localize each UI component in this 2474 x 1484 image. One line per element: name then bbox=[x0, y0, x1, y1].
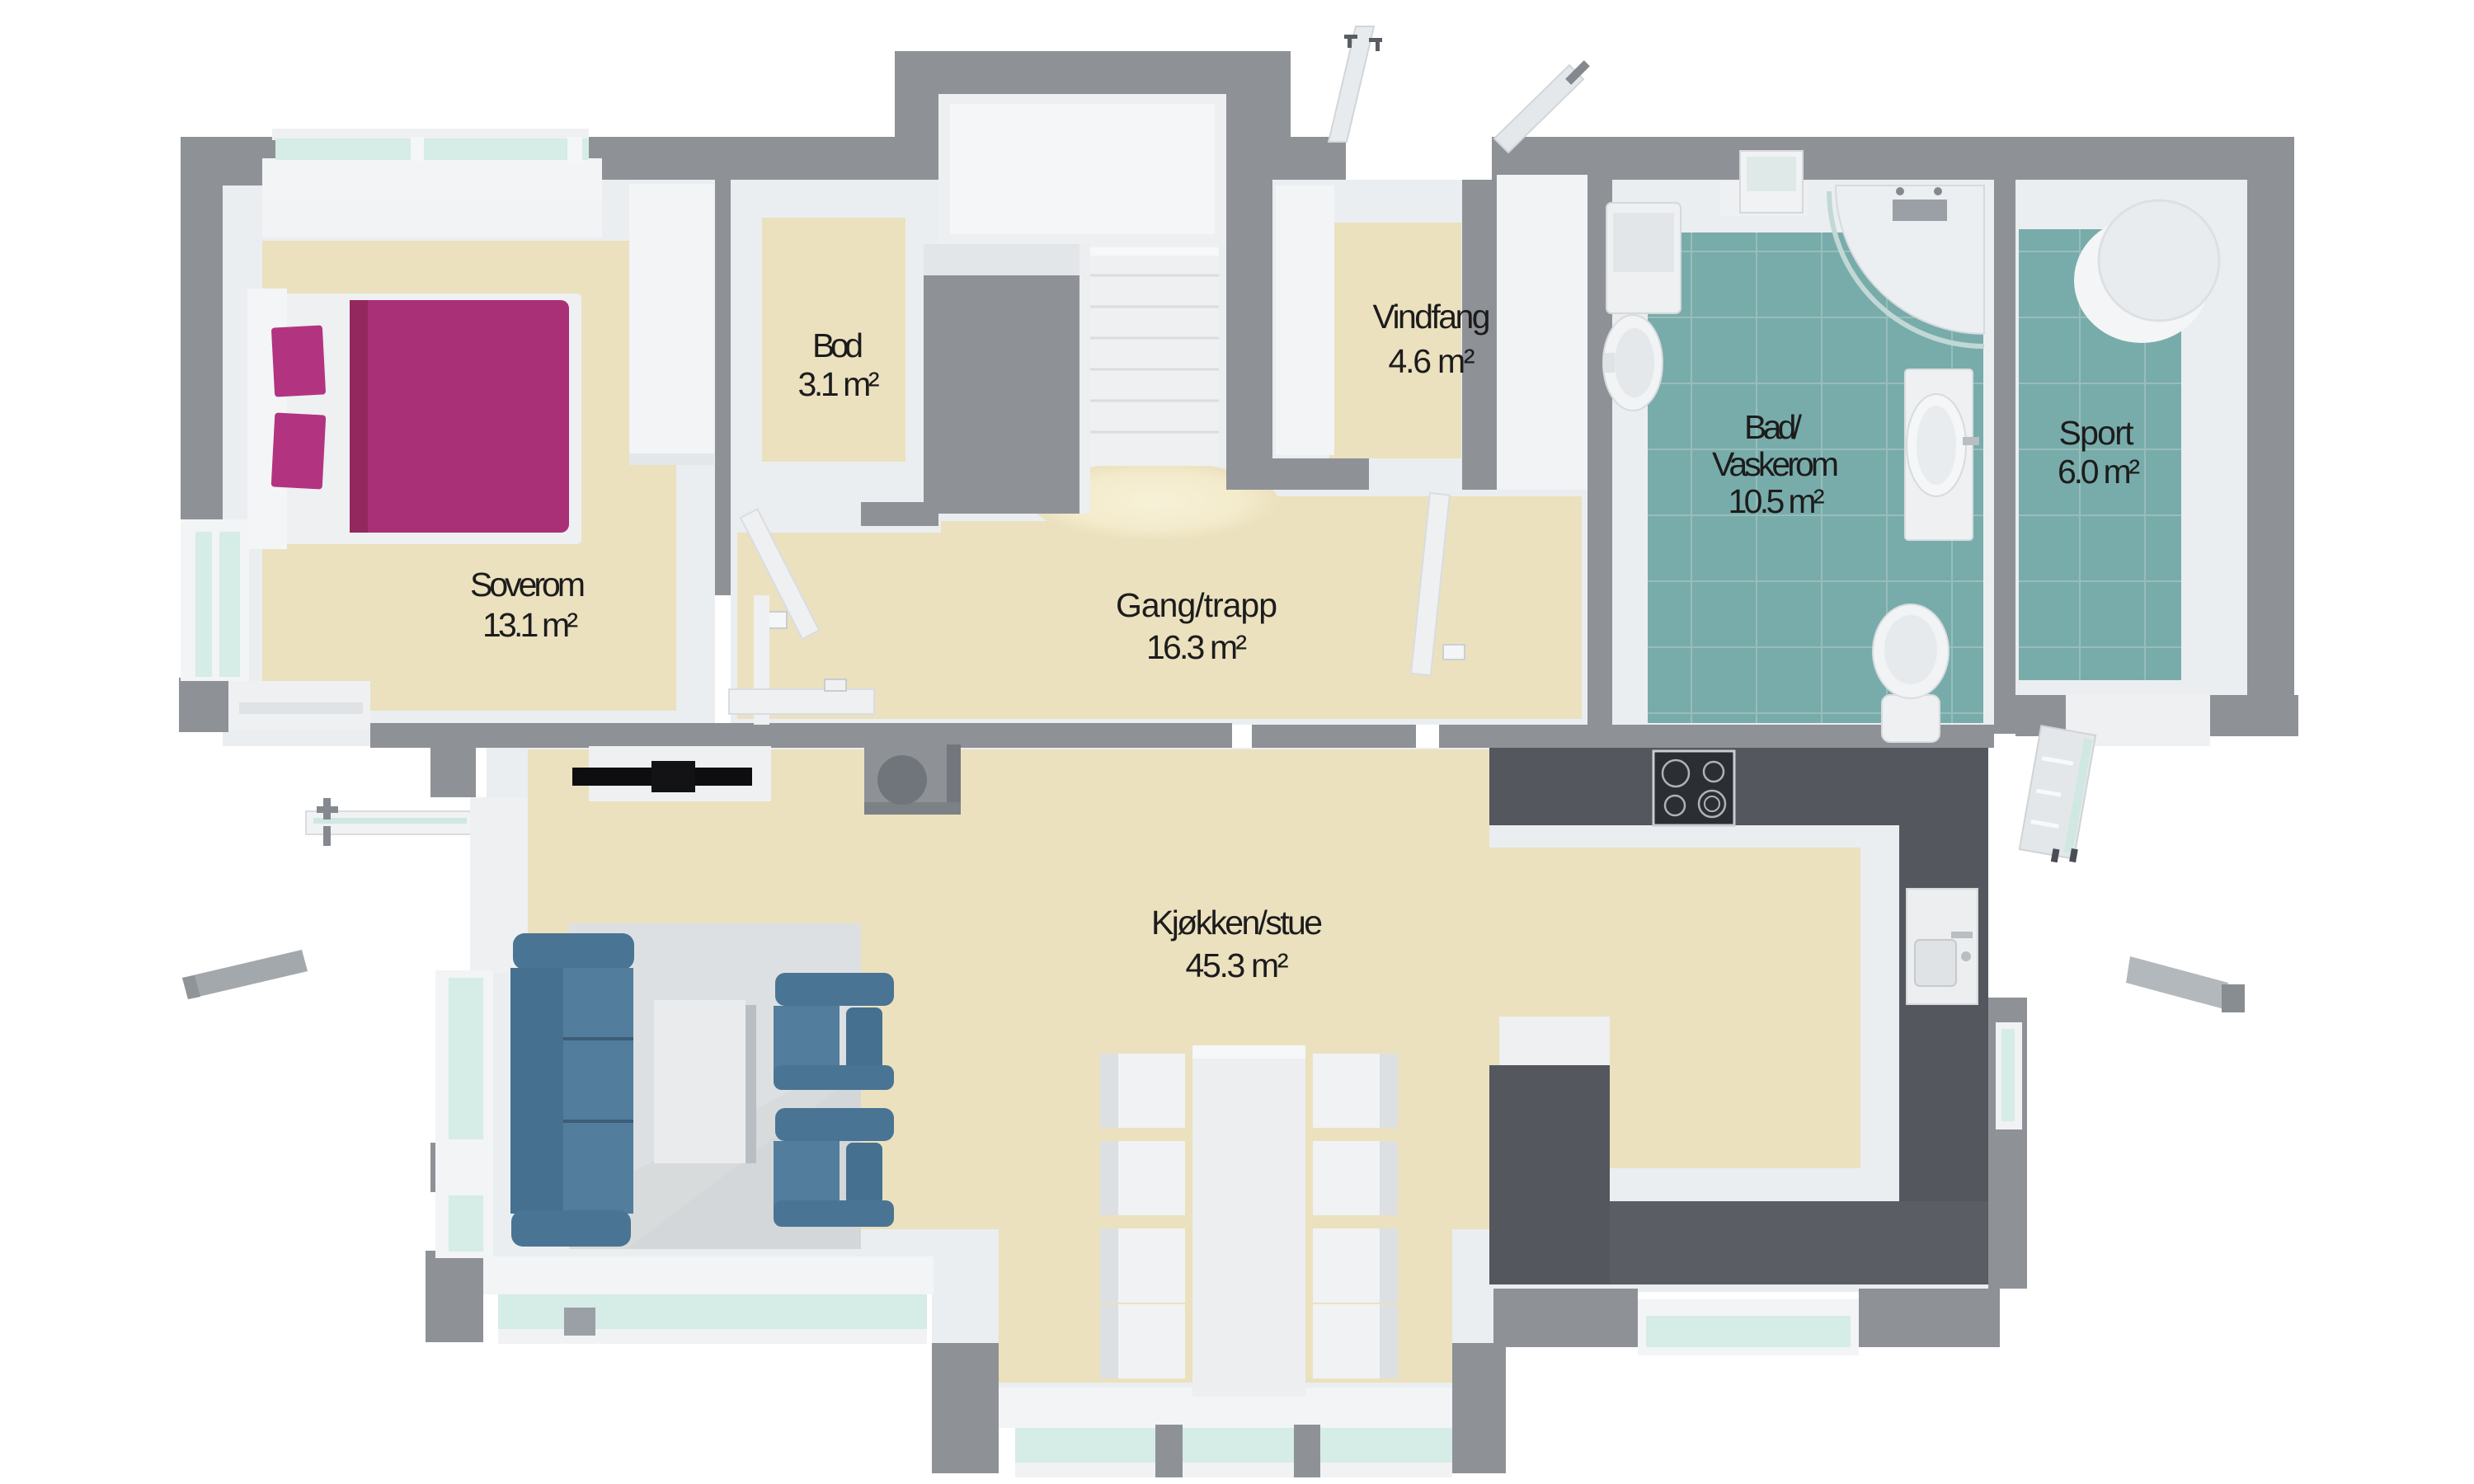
svg-text:6.0 m²: 6.0 m² bbox=[2058, 453, 2140, 491]
svg-text:3.1 m²: 3.1 m² bbox=[798, 365, 880, 403]
svg-text:Kjøkken/stue: Kjøkken/stue bbox=[1151, 904, 1323, 942]
svg-text:Vaskerom: Vaskerom bbox=[1712, 445, 1839, 483]
svg-text:Vindfang: Vindfang bbox=[1373, 298, 1491, 336]
svg-text:Bad/: Bad/ bbox=[1744, 408, 1803, 446]
svg-text:Soverom: Soverom bbox=[470, 566, 586, 603]
svg-text:Sport: Sport bbox=[2059, 414, 2135, 452]
svg-text:Gang/trapp: Gang/trapp bbox=[1116, 586, 1277, 624]
svg-text:13.1 m²: 13.1 m² bbox=[482, 606, 578, 644]
svg-text:10.5 m²: 10.5 m² bbox=[1729, 482, 1825, 520]
svg-text:45.3 m²: 45.3 m² bbox=[1186, 946, 1289, 984]
svg-text:16.3 m²: 16.3 m² bbox=[1146, 628, 1247, 666]
svg-text:4.6 m²: 4.6 m² bbox=[1389, 342, 1475, 380]
svg-text:Bod: Bod bbox=[812, 326, 863, 364]
